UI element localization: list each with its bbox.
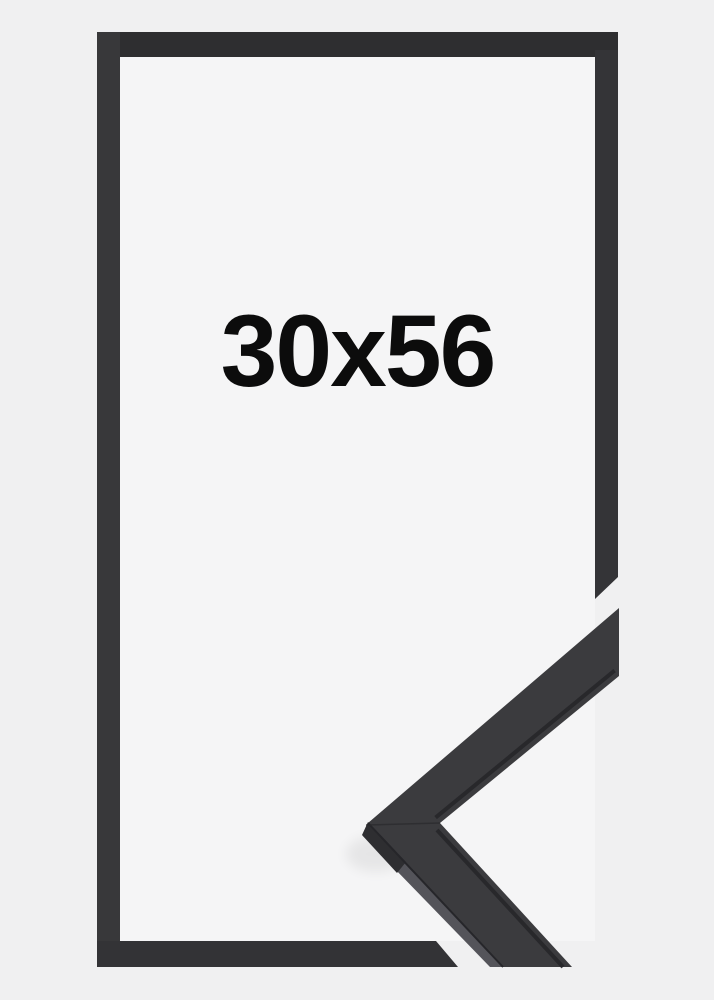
frame-border-left bbox=[97, 32, 120, 967]
size-label-container: 30x56 bbox=[120, 296, 595, 406]
product-image: 30x56 bbox=[0, 0, 714, 1000]
size-label: 30x56 bbox=[221, 300, 495, 402]
frame-corner-sample bbox=[346, 608, 619, 967]
frame-border-bottom bbox=[97, 941, 458, 967]
moulding-top-face bbox=[368, 608, 619, 967]
frame-outline bbox=[97, 32, 618, 967]
frame-border-top bbox=[97, 32, 618, 57]
frame-illustration bbox=[0, 0, 714, 1000]
frame-border-right bbox=[595, 50, 618, 599]
